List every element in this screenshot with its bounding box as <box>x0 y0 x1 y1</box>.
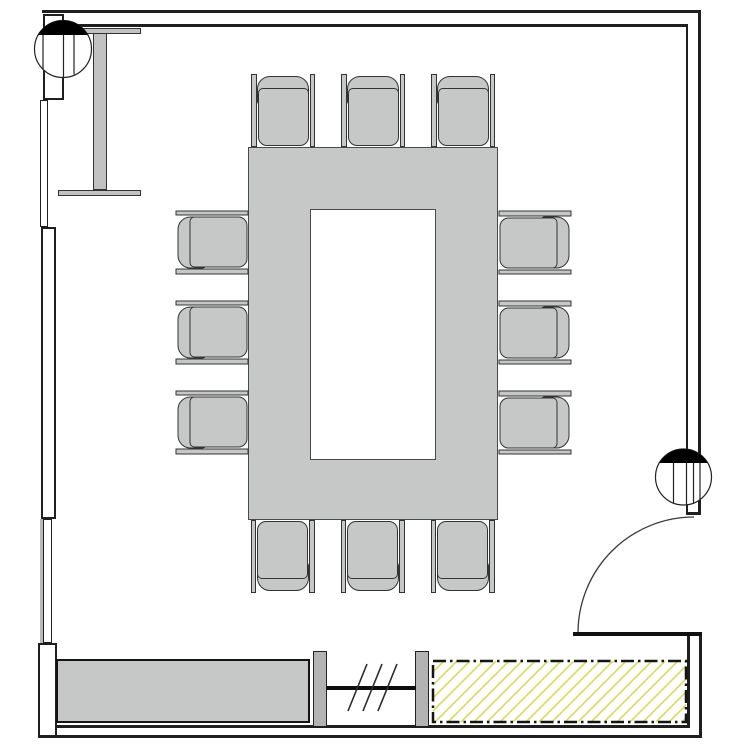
chair-seat <box>348 521 399 579</box>
chair <box>498 210 571 274</box>
chair-armrest <box>175 210 248 216</box>
wall-top-inner <box>63 24 688 27</box>
chair-armrest <box>498 390 571 396</box>
chair-seat <box>499 217 557 268</box>
wall-bottom-inner <box>55 725 688 728</box>
conference-table-opening <box>310 209 436 460</box>
chair-seat <box>189 217 247 268</box>
chair-armrest <box>490 520 496 593</box>
chair-armrest <box>498 449 571 455</box>
chair <box>341 74 405 147</box>
chair-armrest <box>310 520 316 593</box>
chair-armrest <box>498 269 571 275</box>
wall-element-stem <box>93 33 107 190</box>
wall-right-inner-upper <box>686 24 689 515</box>
chair-armrest <box>498 359 571 365</box>
chair <box>175 390 248 454</box>
wall-left-segment-2 <box>40 100 48 227</box>
chair <box>498 300 571 364</box>
wall-element-bottom-cap <box>58 190 141 196</box>
section-marker-icon <box>656 449 712 505</box>
chair <box>341 520 405 593</box>
partition-post <box>415 651 429 727</box>
chair-armrest <box>431 520 437 593</box>
chair-armrest <box>490 74 496 147</box>
chair <box>175 210 248 274</box>
chair-armrest <box>175 269 248 275</box>
chair-armrest <box>400 74 406 147</box>
wall-top-outer <box>42 10 701 13</box>
chair-armrest <box>251 520 257 593</box>
chair <box>175 300 248 364</box>
chair <box>431 520 495 593</box>
chair-armrest <box>498 210 571 216</box>
wall-left-segment-3 <box>41 227 56 519</box>
wall-left-segment-1 <box>43 14 64 100</box>
wall-right-jamb-cap <box>686 512 702 515</box>
chair-armrest <box>175 300 248 306</box>
conference-table <box>248 147 498 520</box>
door-swing-arc <box>578 517 694 632</box>
chair-seat <box>189 307 247 358</box>
chair-armrest <box>341 520 347 593</box>
chair-seat <box>438 88 489 146</box>
glass-panel-line <box>327 686 416 690</box>
chair-seat <box>189 397 247 448</box>
partition-post <box>313 651 327 727</box>
wall-left-segment-4 <box>43 519 52 643</box>
wall-right-inner-lower <box>687 636 690 728</box>
chair-armrest <box>175 390 248 396</box>
chair-armrest <box>498 300 571 306</box>
chair-armrest <box>431 74 437 147</box>
wall-right-outer-upper <box>698 10 701 515</box>
chair <box>498 390 571 454</box>
chair-armrest <box>310 74 316 147</box>
wall-left-segment-5 <box>38 643 57 737</box>
chair-armrest <box>175 359 248 365</box>
floor-plan <box>0 0 750 750</box>
chair-armrest <box>400 520 406 593</box>
wall-right-outer-lower <box>699 636 702 738</box>
counter <box>56 659 310 723</box>
chair-seat <box>258 521 309 579</box>
hatched-zone <box>433 661 686 722</box>
chair-seat <box>499 307 557 358</box>
chair <box>251 74 315 147</box>
chair-armrest <box>341 74 347 147</box>
chair-seat <box>258 88 309 146</box>
chair-seat <box>499 397 557 448</box>
wall-bottom-outer <box>38 735 702 738</box>
chair-seat <box>348 88 399 146</box>
chair-seat <box>438 521 489 579</box>
chair <box>251 520 315 593</box>
chair <box>431 74 495 147</box>
chair-armrest <box>175 449 248 455</box>
door-leaf <box>573 632 702 636</box>
chair-armrest <box>251 74 257 147</box>
